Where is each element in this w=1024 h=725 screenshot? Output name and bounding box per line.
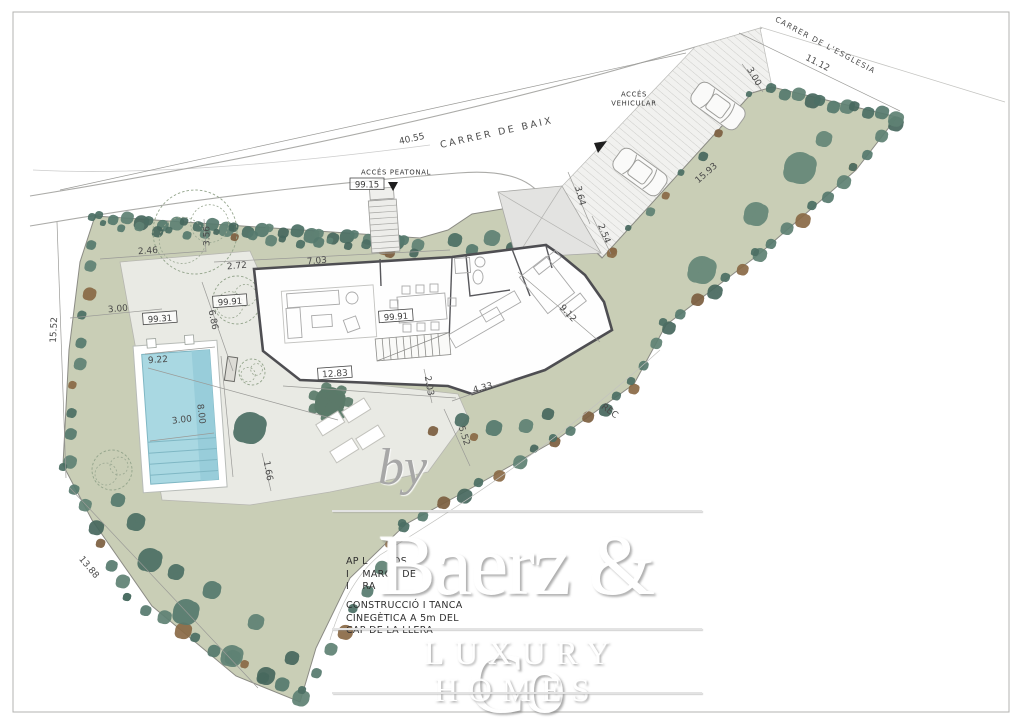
pool-skimmer	[184, 335, 194, 345]
dimension-label: 2.46	[138, 246, 159, 257]
dimension-label: 12.83	[317, 366, 352, 381]
svg-text:99.31: 99.31	[147, 314, 172, 326]
svg-text:40.55: 40.55	[398, 132, 425, 147]
tree-icon	[96, 539, 106, 548]
access-label: ACCÉS PEATONAL	[361, 168, 431, 177]
plan-note-line: CAP DE LA LLERA	[346, 625, 463, 638]
entry-stairs	[367, 187, 399, 253]
svg-text:99.15: 99.15	[355, 181, 379, 191]
svg-text:9.22: 9.22	[148, 355, 169, 366]
dimension-label: 9.22	[148, 355, 169, 366]
svg-text:VEHICULAR: VEHICULAR	[611, 100, 656, 108]
svg-text:12.83: 12.83	[322, 369, 348, 381]
street-name-label: CARRER DE BAIX	[439, 115, 554, 151]
dimension-label: 7.03	[307, 256, 328, 268]
dimension-label: 3.00	[108, 304, 129, 316]
spot-elevation-label: 99.15	[350, 178, 384, 191]
plan-note-line: I RA	[346, 581, 416, 594]
dimension-label: 3.56	[203, 226, 213, 246]
svg-text:7.03: 7.03	[307, 256, 328, 268]
spot-elevation-label: 99.31	[142, 311, 177, 326]
plan-note-line: CONSTRUCCIÓ I TANCA	[346, 600, 463, 613]
svg-text:99.91: 99.91	[217, 297, 242, 309]
tree-icon	[140, 605, 151, 616]
spot-elevation-label: 99.91	[378, 309, 413, 324]
svg-text:2.72: 2.72	[227, 261, 248, 273]
dimension-label: 15.52	[49, 317, 60, 343]
site-plan-page: CARRER DE BAIXCARRER DE L'ESGLESIAACCÉS …	[0, 0, 1024, 725]
svg-text:99.91: 99.91	[383, 312, 408, 324]
svg-text:REC: REC	[599, 402, 620, 421]
svg-text:ACCÉS: ACCÉS	[621, 90, 647, 99]
dimension-label: 13.88	[76, 555, 100, 581]
dimension-label: REC	[599, 402, 620, 421]
plan-note-line: I MARG DE	[346, 569, 416, 582]
tree-icon	[106, 560, 118, 572]
svg-text:ACCÉS PEATONAL: ACCÉS PEATONAL	[361, 168, 431, 177]
spot-elevation-label: 99.91	[212, 294, 247, 309]
access-label: ACCÉS	[621, 90, 647, 99]
svg-text:3.00: 3.00	[108, 304, 129, 316]
plan-note: CONSTRUCCIÓ I TANCACINEGÈTICA A 5m DELCA…	[346, 600, 463, 638]
access-label: VEHICULAR	[611, 100, 656, 108]
svg-text:2.46: 2.46	[138, 246, 159, 257]
plan-note-line: CINEGÈTICA A 5m DEL	[346, 613, 463, 626]
tree-icon	[311, 668, 322, 678]
tree-icon	[116, 574, 131, 588]
dimension-label: 40.55	[398, 132, 425, 147]
dimension-label: 2.72	[227, 261, 248, 273]
contour-line	[33, 145, 430, 171]
svg-text:13.88: 13.88	[76, 555, 100, 581]
plan-note: AP L LOSI MARG DEI RA	[346, 556, 416, 594]
tree-icon	[324, 643, 337, 656]
site-plan-drawing: CARRER DE BAIXCARRER DE L'ESGLESIAACCÉS …	[0, 0, 1024, 725]
svg-text:3.56: 3.56	[203, 226, 213, 246]
svg-text:15.52: 15.52	[49, 317, 60, 343]
pool-skimmer	[147, 339, 157, 349]
svg-text:CARRER DE BAIX: CARRER DE BAIX	[439, 115, 554, 151]
plan-note-line: AP L LOS	[346, 556, 416, 569]
